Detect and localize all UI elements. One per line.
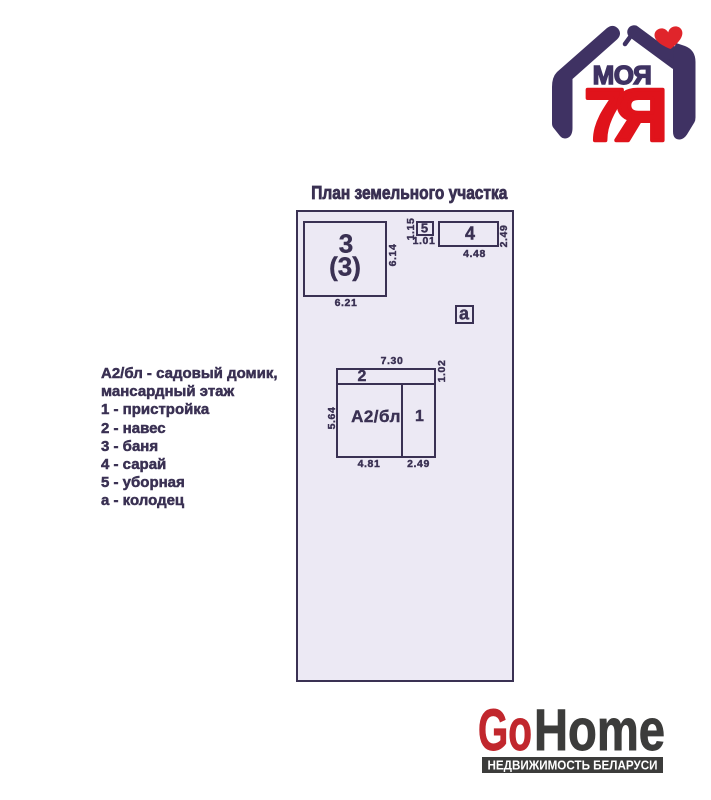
svg-text:НЕДВИЖИМОСТЬ БЕЛАРУСИ: НЕДВИЖИМОСТЬ БЕЛАРУСИ: [488, 759, 658, 773]
svg-text:7Я: 7Я: [584, 75, 663, 146]
svg-text:Home: Home: [534, 700, 665, 763]
svg-text:Go: Go: [478, 700, 532, 763]
